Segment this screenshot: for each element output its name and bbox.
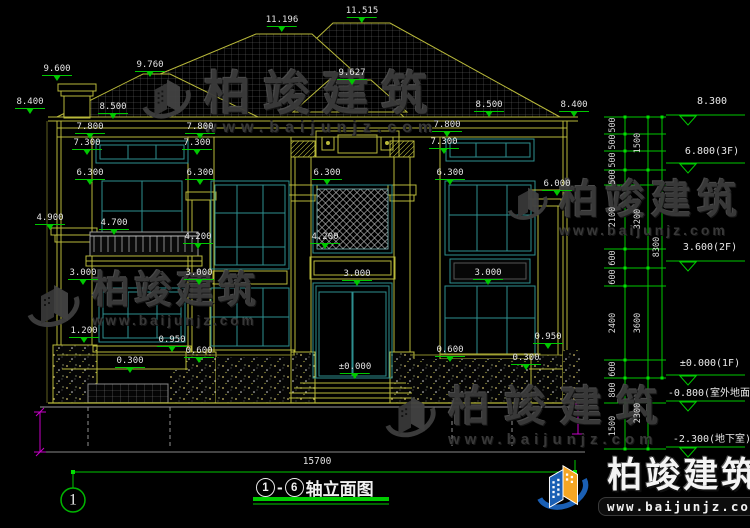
watermark: 柏竣建筑 www.baijunjz.com: [138, 70, 440, 137]
chain-dim-label: 2300: [633, 403, 643, 423]
axis-end-bubble: 6: [285, 478, 304, 497]
dim-label: 0.950: [533, 333, 563, 351]
dim-label: 8.400: [559, 101, 589, 119]
dim-label: 0.950: [157, 336, 187, 354]
overall-width-dimension: 15700: [303, 456, 332, 467]
dim-label: 7.300: [182, 139, 212, 157]
dim-label: 9.627: [337, 69, 367, 87]
watermark-url: www.baijunjz.com: [448, 431, 672, 448]
watermark-brand: 柏竣建筑: [559, 180, 743, 220]
dim-label: 7.300: [72, 139, 102, 157]
dim-label: 3.000: [68, 269, 98, 287]
watermark: 柏竣建筑 www.baijunjz.com: [382, 386, 672, 448]
title-underline: [253, 497, 389, 501]
elevation-label: 6.800(3F): [685, 146, 739, 157]
axis-start-bubble: 1: [256, 478, 275, 497]
chain-dim-label: 8300: [652, 237, 662, 257]
chain-dim-label: 600: [608, 361, 618, 376]
dim-label: 4.700: [99, 219, 129, 237]
chain-dim-label: 2100: [608, 207, 618, 227]
dim-label: 8.500: [98, 103, 128, 121]
title-dash: -: [277, 478, 283, 498]
dim-label: 3.000: [342, 270, 372, 288]
elevation-label: ±0.000(1F): [680, 358, 740, 369]
dim-label: 11.515: [346, 7, 379, 25]
dim-label: 0.600: [184, 347, 214, 365]
watermark-brand: 柏竣建筑: [204, 70, 440, 117]
title-underline-thin: [253, 503, 389, 505]
watermark: 柏竣建筑 www.baijunjz.com: [505, 180, 743, 238]
chain-dim-label: 800: [608, 382, 618, 397]
elevation-label: -2.300(地下室): [673, 430, 750, 445]
watermark-url: www.baijunjz.com: [559, 222, 743, 238]
watermark: 柏竣建筑 www.baijunjz.com: [24, 272, 260, 338]
dim-label: 0.600: [435, 346, 465, 364]
dim-label: 0.300: [115, 357, 145, 375]
brand-logo-url: www.baijunjz.com: [598, 497, 750, 516]
chain-dim-label: 500: [608, 169, 618, 184]
dim-label: 6.300: [435, 169, 465, 187]
dim-label: 8.500: [474, 101, 504, 119]
dim-label: 8.400: [15, 98, 45, 116]
dim-label: 6.000: [542, 180, 572, 198]
dim-label: 11.196: [266, 16, 299, 34]
chain-dim-label: 600: [608, 250, 618, 265]
watermark-brand: 柏竣建筑: [92, 272, 260, 310]
dim-label: 4.200: [310, 233, 340, 251]
chain-dim-label: 3600: [633, 313, 643, 333]
dim-label: 3.000: [184, 269, 214, 287]
cad-screenshot: 柏竣建筑 www.baijunjz.com 柏竣建筑 www.baijunjz.…: [0, 0, 750, 528]
dim-label: 0.300: [511, 354, 541, 372]
dim-label: 9.760: [135, 61, 165, 79]
chain-dim-label: 600: [608, 269, 618, 284]
dim-label: 6.300: [75, 169, 105, 187]
chain-dim-label: 1500: [633, 133, 643, 153]
chain-dim-label: 500: [608, 134, 618, 149]
dim-label: ±0.000: [339, 363, 372, 381]
watermark-url: www.baijunjz.com: [92, 313, 260, 328]
brand-logo-text: 柏竣建筑: [607, 456, 750, 496]
dim-label: 3.000: [473, 269, 503, 287]
chain-dim-label: 1500: [608, 416, 618, 436]
elevation-label: 3.600(2F): [683, 242, 737, 253]
chimney: [58, 84, 96, 118]
chain-dim-label: 3200: [633, 209, 643, 229]
dim-label: 6.300: [312, 169, 342, 187]
dim-label: 4.900: [35, 214, 65, 232]
brand-logo-icon: [534, 456, 592, 518]
dim-label: 9.600: [42, 65, 72, 83]
dim-label: 1.200: [69, 327, 99, 345]
chain-dim-label: 2400: [608, 313, 618, 333]
watermark-url: www.baijunjz.com: [204, 119, 440, 137]
elevation-label: 8.300: [697, 96, 727, 107]
chain-dim-label: 500: [608, 152, 618, 167]
brand-logo: 柏竣建筑 www.baijunjz.com: [534, 456, 750, 518]
dim-label: 7.300: [429, 138, 459, 156]
watermark-logo-icon: [382, 386, 440, 446]
dim-label: 4.200: [183, 233, 213, 251]
dim-label: 6.300: [185, 169, 215, 187]
chain-dim-label: 500: [608, 117, 618, 132]
elevation-label: -0.800(室外地面): [668, 384, 750, 399]
axis-bubble-1: 1: [61, 488, 86, 513]
